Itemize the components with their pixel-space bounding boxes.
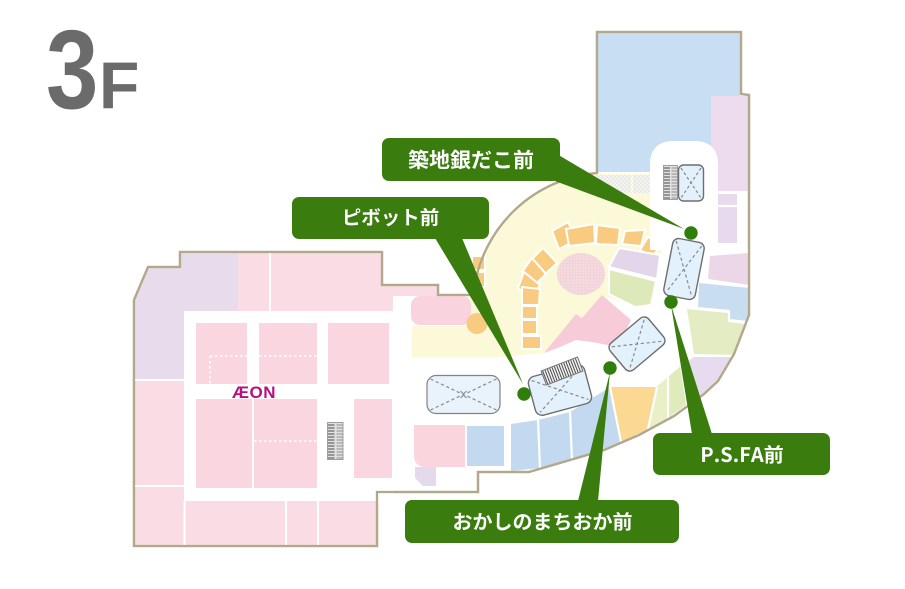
svg-text:F: F <box>99 48 139 122</box>
svg-text:ÆON: ÆON <box>232 383 276 402</box>
svg-text:3: 3 <box>46 6 98 132</box>
